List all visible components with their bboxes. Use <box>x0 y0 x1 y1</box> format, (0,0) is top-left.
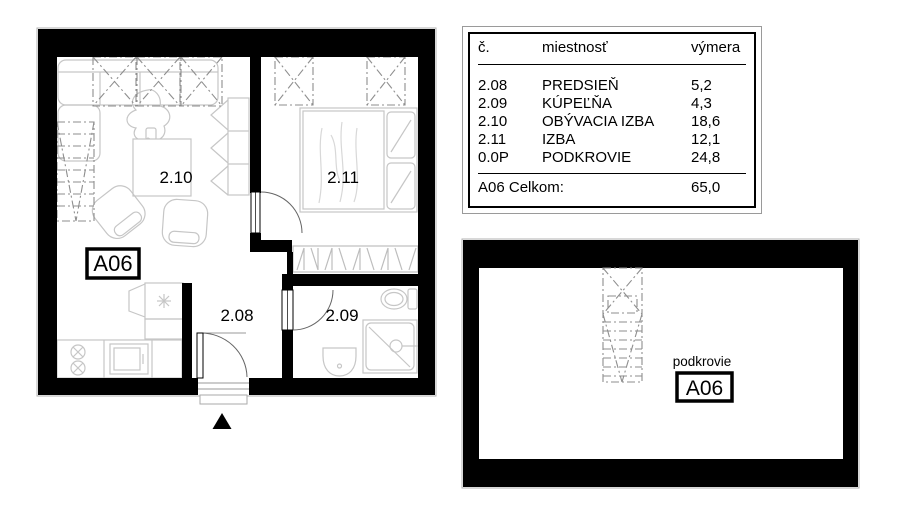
col-header-room: miestnosť <box>542 38 691 58</box>
unit-label-box: A06 <box>87 249 139 278</box>
room-label-bedroom: 2.11 <box>327 168 359 187</box>
table-row: 2.11 IZBA 12,1 <box>478 131 749 149</box>
bed <box>300 108 417 212</box>
total-value: 65,0 <box>691 178 749 197</box>
legend-rows: 2.08 PREDSIEŇ 5,2 2.09 KÚPEĽŇA 4,3 2.10 … <box>478 77 749 167</box>
col-header-no: č. <box>478 38 542 58</box>
divider <box>478 64 746 65</box>
wardrobe <box>293 246 418 272</box>
table-row: 2.08 PREDSIEŇ 5,2 <box>478 77 749 95</box>
legend-header: č. miestnosť výmera <box>478 38 749 58</box>
legend-table-inner: č. miestnosť výmera 2.08 PREDSIEŇ 5,2 2.… <box>468 32 756 208</box>
room-label-bathroom: 2.09 <box>325 306 358 325</box>
attic-outline <box>462 239 859 488</box>
unit-label: A06 <box>93 251 132 276</box>
table-row: 2.09 KÚPEĽŇA 4,3 <box>478 95 749 113</box>
legend-total-row: A06 Celkom: 65,0 <box>478 178 749 197</box>
divider <box>478 173 746 174</box>
col-header-area: výmera <box>691 38 749 58</box>
page: A06 2.10 2.11 2.08 2.09 č. miestnosť vým… <box>0 0 900 525</box>
legend-table: č. miestnosť výmera 2.08 PREDSIEŇ 5,2 2.… <box>462 26 762 214</box>
room-label-living: 2.10 <box>159 168 192 187</box>
table-row: 2.10 OBÝVACIA IZBA 18,6 <box>478 113 749 131</box>
floor-plan: A06 2.10 2.11 2.08 2.09 <box>0 0 460 460</box>
entrance-arrow-icon <box>213 413 232 429</box>
attic-title: podkrovie <box>673 354 732 369</box>
total-label: A06 Celkom: <box>478 178 691 197</box>
room-label-hall: 2.08 <box>220 306 253 325</box>
attic-unit-label: A06 <box>686 377 723 400</box>
table-row: 0.0P PODKROVIE 24,8 <box>478 149 749 167</box>
attic-plan: podkrovie A06 <box>455 230 870 515</box>
attic-unit-label-box: A06 <box>677 373 732 401</box>
